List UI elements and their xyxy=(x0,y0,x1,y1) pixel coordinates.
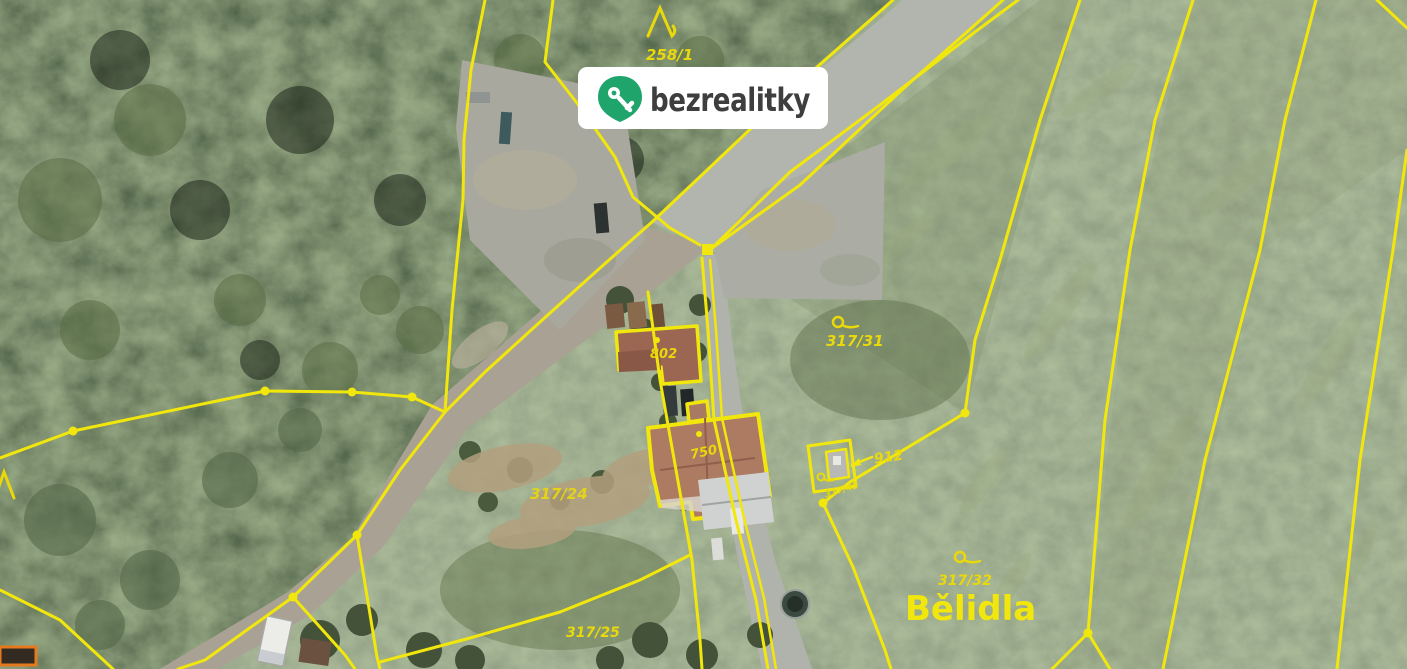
junction-node xyxy=(702,244,713,255)
parcel-label-317-25: 317/25 xyxy=(566,625,620,641)
place-label-belidla: Bělidla xyxy=(905,589,1036,629)
parcel-label-802: 802 xyxy=(650,347,677,362)
point-marker-750 xyxy=(696,431,702,437)
highlighted-object xyxy=(0,647,36,665)
brand-name: bezrealitky xyxy=(650,81,811,119)
parcel-label-317-32: 317/32 xyxy=(938,573,992,589)
bezrealitky-watermark: bezrealitky xyxy=(578,67,828,129)
parcel-label-258-1: 258/1 xyxy=(646,46,693,64)
parcel-label-317-31: 317/31 xyxy=(826,332,884,350)
parcel-label-317-24: 317/24 xyxy=(530,485,588,503)
map-canvas[interactable]: 258/1 317/31 802 750 912 317/45 317/24 3… xyxy=(0,0,1407,669)
aerial-map[interactable]: 258/1 317/31 802 750 912 317/45 317/24 3… xyxy=(0,0,1407,669)
